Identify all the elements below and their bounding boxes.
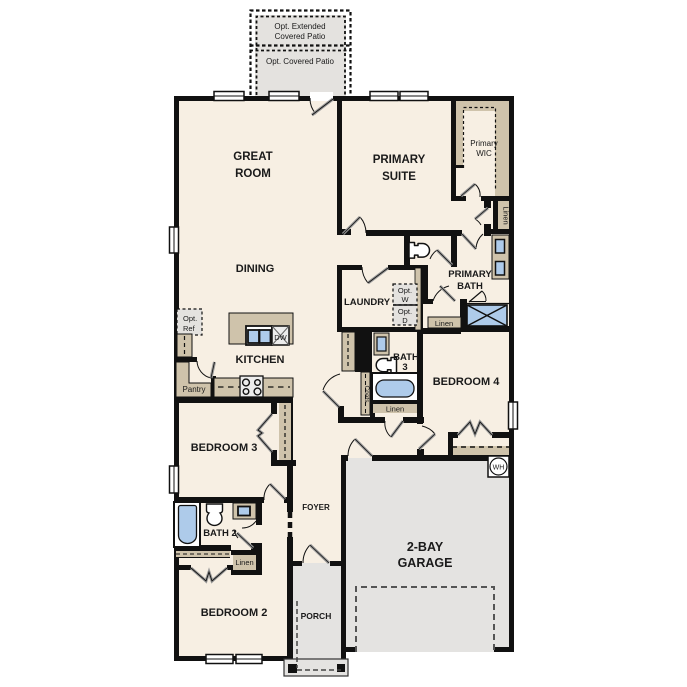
svg-text:BEDROOM 3: BEDROOM 3 <box>191 442 258 454</box>
svg-text:BATH: BATH <box>457 281 483 292</box>
svg-text:ROOM: ROOM <box>235 168 271 180</box>
svg-text:Pantry: Pantry <box>182 385 205 394</box>
svg-text:Opt. Covered Patio: Opt. Covered Patio <box>266 57 335 66</box>
svg-text:Primary: Primary <box>470 139 498 148</box>
svg-text:2-BAY: 2-BAY <box>407 540 444 554</box>
svg-text:Ref: Ref <box>183 324 196 333</box>
svg-text:3: 3 <box>402 362 407 373</box>
svg-text:BEDROOM 4: BEDROOM 4 <box>433 376 501 388</box>
svg-text:PORCH: PORCH <box>301 611 332 621</box>
svg-text:Linen: Linen <box>386 405 404 414</box>
svg-text:DINING: DINING <box>236 263 275 275</box>
svg-text:GARAGE: GARAGE <box>398 556 453 570</box>
svg-text:WIC: WIC <box>476 149 492 158</box>
svg-text:SUITE: SUITE <box>382 171 416 183</box>
svg-text:Opt.: Opt. <box>183 314 197 323</box>
svg-text:BEDROOM 2: BEDROOM 2 <box>201 607 268 619</box>
svg-text:Opt.: Opt. <box>398 307 412 316</box>
svg-text:PRIMARY: PRIMARY <box>448 269 492 280</box>
svg-text:Linen: Linen <box>435 319 453 328</box>
svg-text:WH: WH <box>493 465 505 472</box>
svg-text:W: W <box>401 295 409 304</box>
svg-text:Coats: Coats <box>363 386 370 404</box>
svg-text:Opt. Extended: Opt. Extended <box>274 22 325 31</box>
svg-text:BATH 2: BATH 2 <box>203 528 237 539</box>
svg-text:GREAT: GREAT <box>233 151 272 163</box>
svg-text:Opt.: Opt. <box>398 286 412 295</box>
svg-text:Covered Patio: Covered Patio <box>275 32 326 41</box>
svg-text:KITCHEN: KITCHEN <box>236 354 285 366</box>
svg-text:PRIMARY: PRIMARY <box>373 154 426 166</box>
svg-text:Linen: Linen <box>502 206 511 224</box>
svg-text:FOYER: FOYER <box>302 503 330 512</box>
svg-text:Linen: Linen <box>235 558 253 567</box>
svg-text:D: D <box>402 316 408 325</box>
svg-text:DW: DW <box>274 333 287 342</box>
svg-text:LAUNDRY: LAUNDRY <box>344 297 391 308</box>
